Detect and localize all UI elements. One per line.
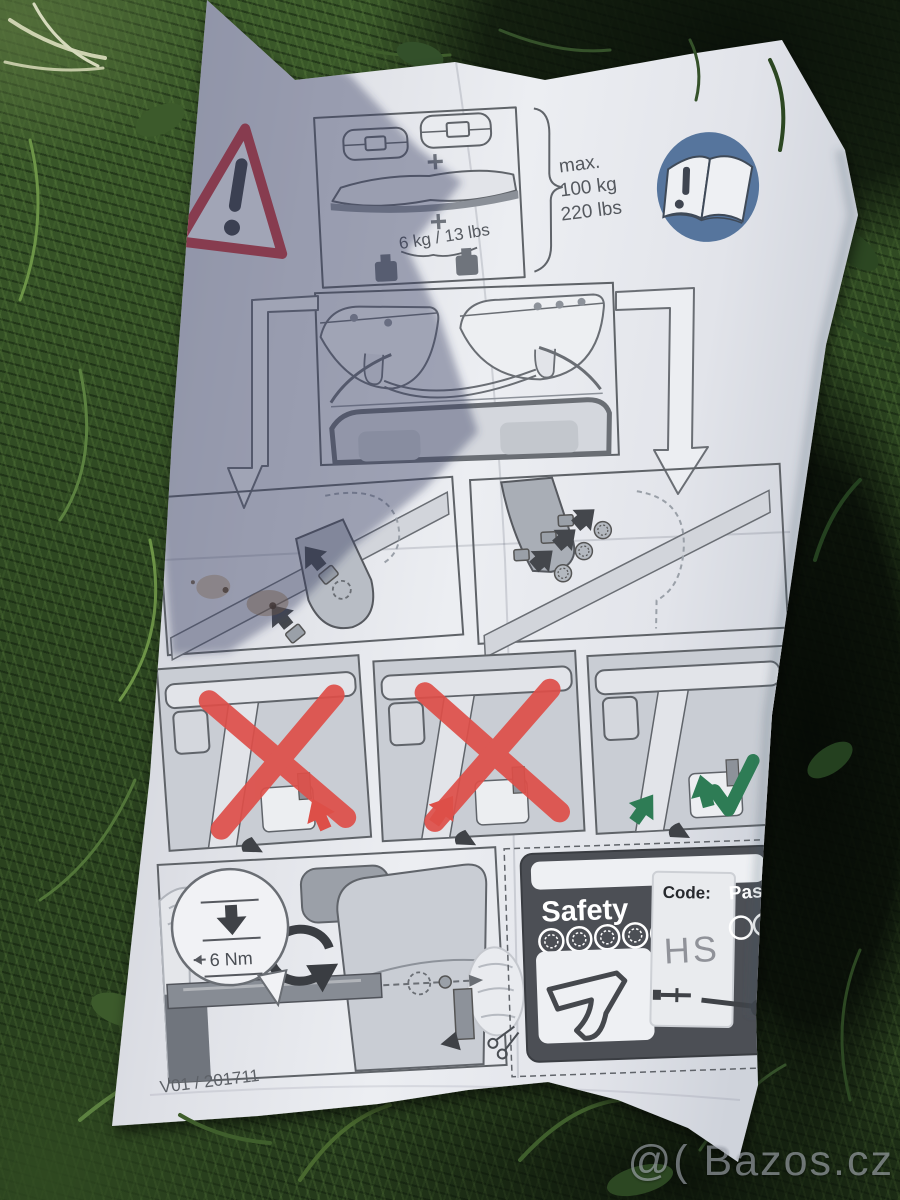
code-label: Code: <box>662 883 710 903</box>
wrong-mount-panel-1 <box>157 655 372 859</box>
pass-label: Pass <box>728 880 774 904</box>
wrong-mount-panel-2 <box>373 651 585 850</box>
photo-scene: + + 6 kg / 13 lbs max. 100 kg <box>0 0 900 1200</box>
safety-card-section: Safety Code: HS <box>482 839 790 1077</box>
clamp-plate <box>454 989 475 1040</box>
headrest <box>500 420 579 455</box>
t-tool-icon <box>760 947 787 1036</box>
code-value-handwritten: HS <box>663 928 721 972</box>
bar-end-pad <box>173 710 210 754</box>
bar-end-pad <box>603 697 639 741</box>
leaflet-photo: + + 6 kg / 13 lbs max. 100 kg <box>0 0 900 1200</box>
bar-end-pad <box>389 702 425 746</box>
suitcase-icon <box>420 113 492 149</box>
torque-value: 6 Nm <box>209 948 253 970</box>
watermark: @( Bazos.cz <box>628 1137 894 1186</box>
safety-title: Safety <box>541 894 629 929</box>
